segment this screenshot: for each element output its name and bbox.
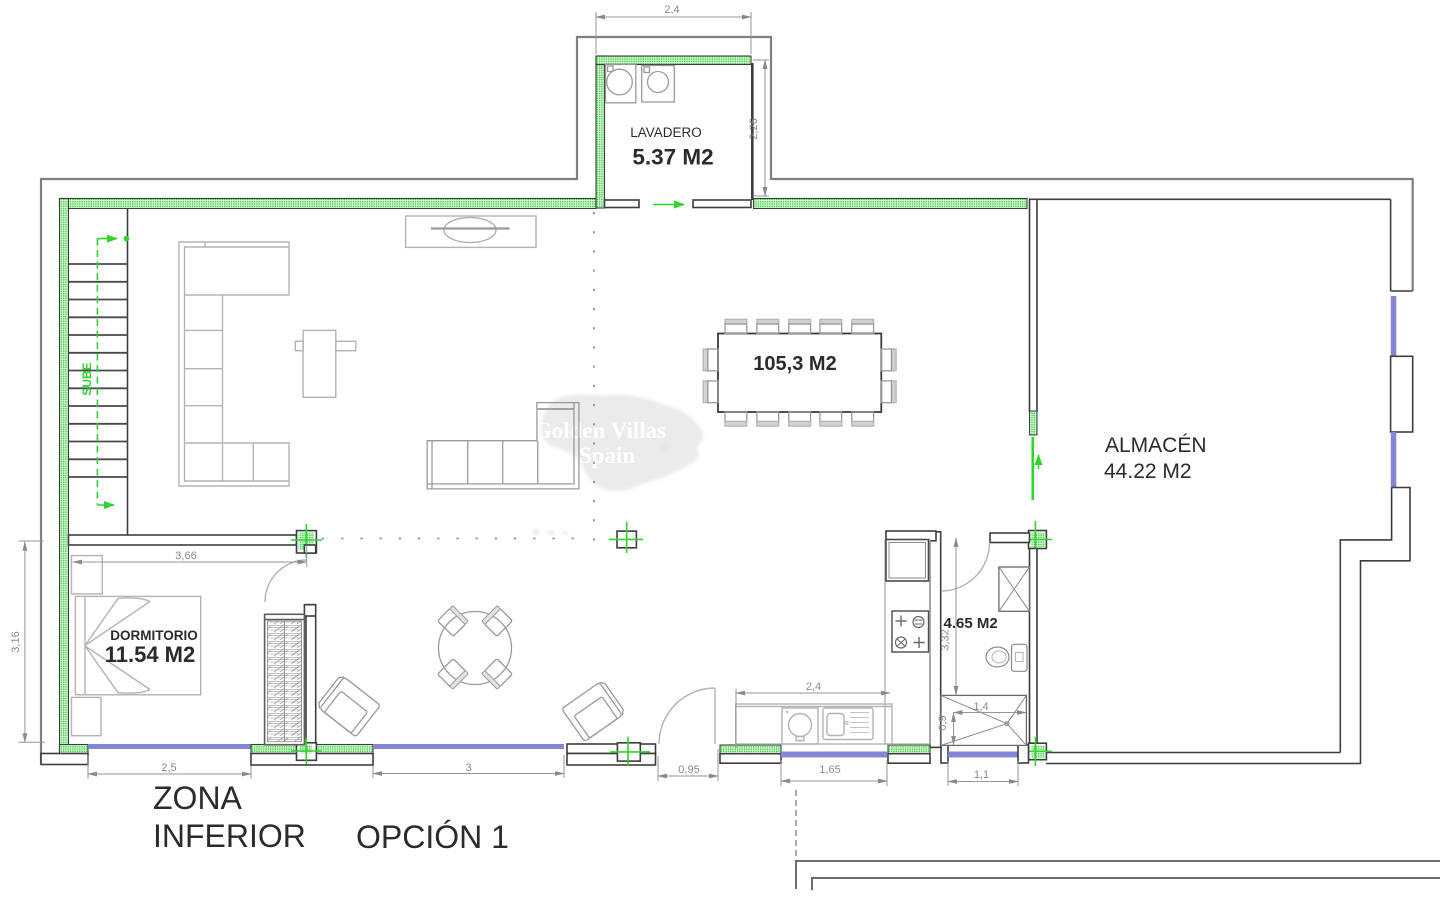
svg-text:2,26: 2,26 — [748, 118, 760, 139]
svg-text:INFERIOR: INFERIOR — [153, 818, 306, 854]
svg-text:0,95: 0,95 — [678, 764, 699, 776]
svg-text:2,5: 2,5 — [161, 762, 176, 774]
svg-text:1,1: 1,1 — [974, 769, 989, 781]
svg-text:3,66: 3,66 — [175, 550, 196, 562]
svg-text:11.54 M2: 11.54 M2 — [105, 642, 196, 667]
svg-text:OPCIÓN 1: OPCIÓN 1 — [356, 819, 509, 855]
svg-text:3,16: 3,16 — [10, 631, 22, 652]
svg-text:2,4: 2,4 — [664, 4, 679, 16]
svg-text:3: 3 — [465, 762, 471, 774]
svg-text:SUBE: SUBE — [80, 362, 94, 395]
svg-text:2,4: 2,4 — [806, 681, 821, 693]
svg-text:1,65: 1,65 — [819, 764, 840, 776]
svg-text:ALMACÉN: ALMACÉN — [1105, 434, 1207, 457]
svg-text:Spain: Spain — [579, 443, 635, 468]
svg-text:DORMITORIO: DORMITORIO — [110, 628, 198, 643]
svg-text:1,4: 1,4 — [973, 701, 988, 713]
svg-text:3,32: 3,32 — [940, 629, 952, 650]
svg-text:5.37 M2: 5.37 M2 — [632, 145, 713, 170]
svg-text:105,3 M2: 105,3 M2 — [753, 353, 836, 375]
svg-text:44.22 M2: 44.22 M2 — [1104, 460, 1192, 483]
svg-text:LAVADERO: LAVADERO — [630, 125, 702, 140]
svg-text:4.65 M2: 4.65 M2 — [944, 615, 998, 632]
svg-text:ZONA: ZONA — [153, 780, 243, 816]
svg-text:Golden Villas: Golden Villas — [534, 418, 666, 443]
svg-text:0,9: 0,9 — [937, 715, 949, 730]
